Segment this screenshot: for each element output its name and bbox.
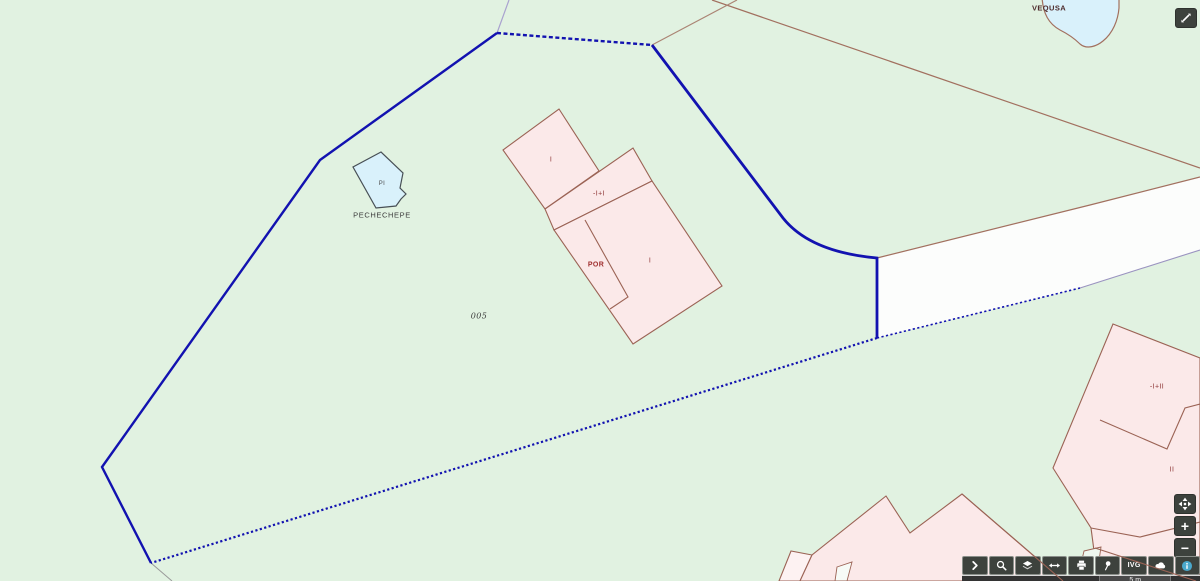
expand-icon xyxy=(1179,11,1193,25)
ivg-button[interactable]: IVG xyxy=(1121,556,1147,575)
info-icon xyxy=(1180,559,1194,573)
chevron-right-icon xyxy=(969,559,981,572)
zoom-in-button[interactable]: + xyxy=(1174,516,1196,536)
pushpin-icon xyxy=(1101,559,1114,572)
zoom-out-button[interactable]: − xyxy=(1174,538,1196,558)
building-label-southeast-lower: II xyxy=(1170,467,1175,474)
scale-bar: 5 m xyxy=(962,575,1200,581)
stream-code-label: PI xyxy=(379,181,385,187)
plus-icon: + xyxy=(1181,519,1189,533)
info-button[interactable] xyxy=(1175,556,1200,575)
magnifier-icon xyxy=(995,559,1008,572)
stream-name-label: PECHECHEPE xyxy=(353,211,411,220)
layers-button[interactable] xyxy=(1015,556,1041,575)
lake-name-label: VEQUSA xyxy=(1032,4,1066,13)
expand-panel-button[interactable] xyxy=(962,556,988,575)
scale-distance-label: 5 m xyxy=(1129,577,1141,581)
pan-button[interactable] xyxy=(1174,494,1196,514)
scale-text-cell xyxy=(962,576,1100,581)
scale-distance-cell: 5 m xyxy=(1100,576,1171,581)
scale-end-cell xyxy=(1171,576,1200,581)
pan-icon xyxy=(1177,496,1193,512)
cloud-icon xyxy=(1154,559,1168,572)
building-label-central-lower: I xyxy=(649,258,651,265)
building-label-central-mid: -I+I xyxy=(593,191,605,198)
minus-icon: − xyxy=(1181,541,1189,555)
building-label-por: POR xyxy=(588,262,604,269)
map-viewer-window: VEQUSA PI PECHECHEPE 005 I -I+I POR I -I… xyxy=(0,0,1200,581)
bottom-toolbar: IVG xyxy=(962,556,1200,575)
map-base-layer xyxy=(0,0,1200,581)
pin-button[interactable] xyxy=(1095,556,1121,575)
building-label-southeast-upper: -I+II xyxy=(1150,384,1164,391)
layers-icon xyxy=(1021,559,1034,572)
parcel-number-label: 005 xyxy=(471,312,487,321)
cloud-button[interactable] xyxy=(1148,556,1174,575)
map-canvas[interactable] xyxy=(0,0,1200,581)
measure-icon xyxy=(1048,559,1061,572)
ivg-label: IVG xyxy=(1128,562,1141,569)
measure-button[interactable] xyxy=(1042,556,1068,575)
search-button[interactable] xyxy=(989,556,1015,575)
printer-icon xyxy=(1075,559,1088,572)
building-label-central-upper: I xyxy=(550,157,552,164)
print-button[interactable] xyxy=(1068,556,1094,575)
fullscreen-button[interactable] xyxy=(1175,8,1197,28)
